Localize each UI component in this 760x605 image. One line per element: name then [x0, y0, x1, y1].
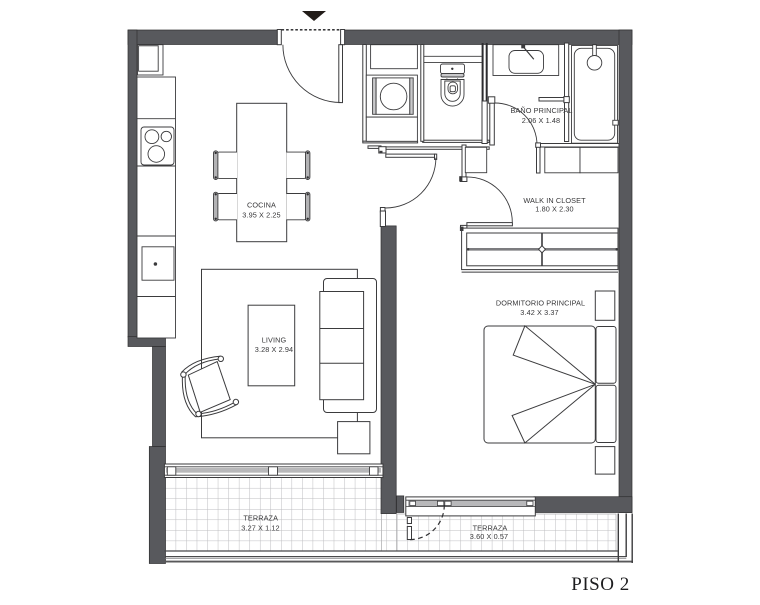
- svg-text:3.27 X 1.12: 3.27 X 1.12: [241, 524, 279, 533]
- svg-text:2.06 X 1.48: 2.06 X 1.48: [522, 116, 560, 125]
- svg-text:PISO 2: PISO 2: [571, 574, 629, 595]
- svg-text:1.80 X 2.30: 1.80 X 2.30: [535, 205, 573, 214]
- svg-text:LIVING: LIVING: [262, 335, 287, 344]
- svg-text:COCINA: COCINA: [247, 201, 276, 210]
- svg-text:BAÑO PRINCIPAL: BAÑO PRINCIPAL: [510, 106, 572, 115]
- svg-text:3.42 X 3.37: 3.42 X 3.37: [520, 308, 558, 317]
- svg-text:3.28 X 2.94: 3.28 X 2.94: [255, 345, 293, 354]
- svg-text:DORMITORIO PRINCIPAL: DORMITORIO PRINCIPAL: [496, 299, 585, 308]
- svg-text:TERRAZA: TERRAZA: [243, 514, 278, 523]
- svg-text:3.95 X 2.25: 3.95 X 2.25: [242, 211, 280, 220]
- svg-text:3.60 X 0.57: 3.60 X 0.57: [470, 532, 508, 541]
